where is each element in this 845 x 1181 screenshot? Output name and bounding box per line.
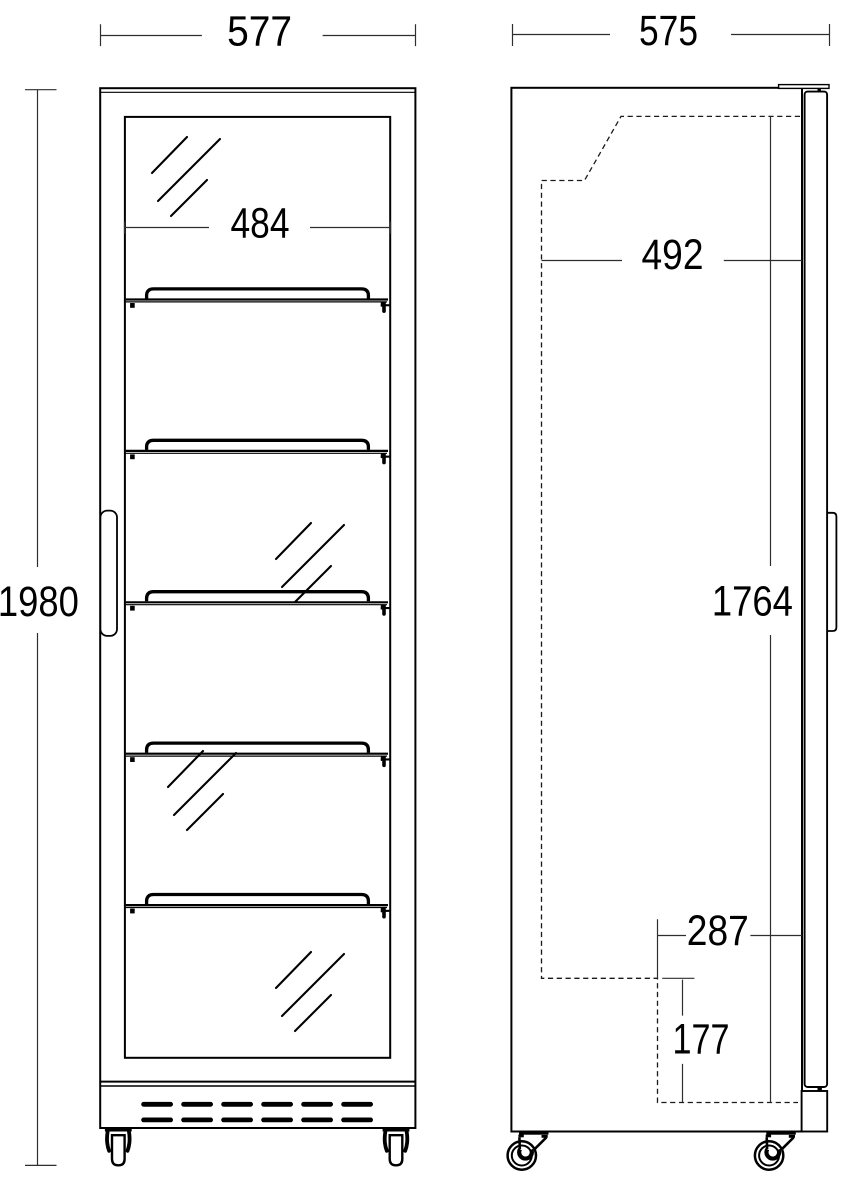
svg-text:1980: 1980	[0, 579, 79, 626]
svg-text:484: 484	[231, 200, 290, 247]
svg-text:177: 177	[673, 1017, 730, 1064]
svg-text:1764: 1764	[712, 579, 793, 626]
svg-text:492: 492	[642, 232, 704, 279]
svg-text:287: 287	[687, 908, 749, 955]
svg-text:575: 575	[639, 8, 698, 55]
svg-text:577: 577	[227, 9, 292, 56]
